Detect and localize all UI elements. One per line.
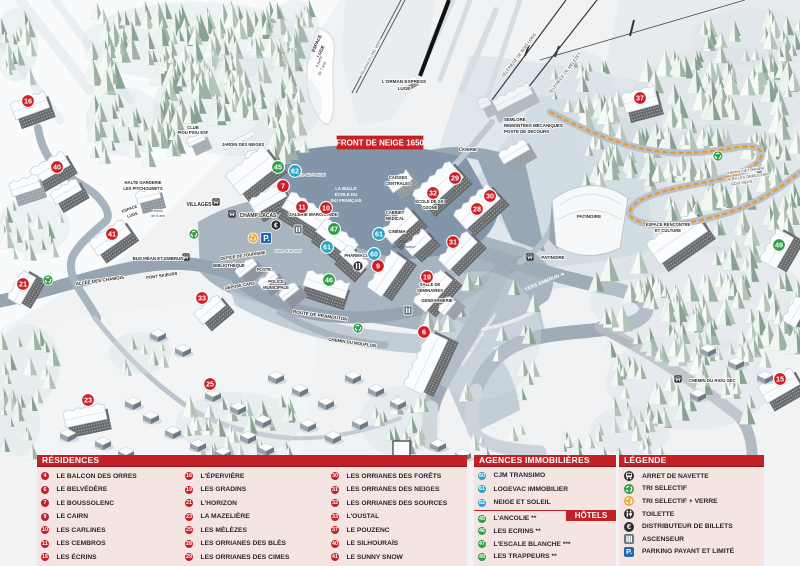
svg-text:47: 47 — [330, 225, 338, 234]
svg-text:CHAMP LACAS: CHAMP LACAS — [240, 213, 278, 219]
svg-text:61: 61 — [323, 243, 331, 252]
svg-text:POLICE: POLICE — [268, 279, 284, 284]
svg-text:SÉMINAIRES: SÉMINAIRES — [417, 288, 443, 293]
svg-text:ET CULTURE: ET CULTURE — [655, 228, 681, 233]
svg-text:MUNICIPALE: MUNICIPALE — [263, 285, 289, 290]
svg-text:L'ORMAN EXPRESS: L'ORMAN EXPRESS — [382, 79, 426, 84]
svg-text:€: € — [274, 223, 278, 230]
svg-text:19: 19 — [423, 273, 431, 282]
svg-text:JARDIN DES NEIGES: JARDIN DES NEIGES — [222, 142, 265, 147]
svg-text:LUGE: LUGE — [398, 86, 411, 91]
svg-text:30: 30 — [486, 192, 494, 201]
svg-text:moins: moins — [153, 209, 163, 213]
svg-text:PATINOIRE: PATINOIRE — [577, 214, 601, 219]
svg-text:MÉDICAL: MÉDICAL — [385, 216, 405, 221]
svg-text:37: 37 — [636, 94, 644, 103]
svg-text:LAVERIE: LAVERIE — [459, 147, 477, 152]
svg-text:SEMLORE: SEMLORE — [504, 117, 526, 122]
svg-text:PATINOIRE: PATINOIRE — [541, 255, 564, 260]
svg-text:PIOU PIOU ESF: PIOU PIOU ESF — [178, 130, 209, 135]
svg-text:FRONT DE NEIGE 1650: FRONT DE NEIGE 1650 — [336, 139, 425, 148]
svg-text:61: 61 — [375, 230, 383, 239]
svg-text:11: 11 — [298, 203, 306, 212]
svg-text:29: 29 — [451, 174, 459, 183]
svg-text:62: 62 — [291, 167, 299, 176]
svg-text:31: 31 — [449, 238, 457, 247]
svg-text:ÉCOLE DU: ÉCOLE DU — [335, 192, 358, 197]
svg-text:LES PITCHOUNETS: LES PITCHOUNETS — [123, 186, 163, 191]
svg-text:Émile Hodoul: Émile Hodoul — [393, 244, 416, 249]
svg-text:GENDARMERIE: GENDARMERIE — [421, 298, 453, 303]
svg-text:15: 15 — [776, 375, 784, 384]
svg-text:CHEMIN DU RIOU SEC: CHEMIN DU RIOU SEC — [688, 378, 736, 383]
svg-text:6: 6 — [422, 328, 426, 337]
svg-text:9: 9 — [376, 262, 380, 271]
svg-text:PHARMACIE: PHARMACIE — [344, 253, 370, 258]
svg-text:7: 7 — [281, 182, 285, 191]
svg-text:60: 60 — [370, 250, 378, 259]
svg-text:49: 49 — [775, 241, 783, 250]
svg-text:32: 32 — [429, 189, 437, 198]
svg-text:BUS MÉAN ET EMBRUN: BUS MÉAN ET EMBRUN — [133, 256, 184, 261]
svg-text:P.: P. — [263, 234, 270, 243]
svg-text:BIBLIOTHÈQUE: BIBLIOTHÈQUE — [213, 263, 245, 268]
svg-text:SKI FRANÇAIS: SKI FRANÇAIS — [330, 198, 361, 203]
svg-text:21: 21 — [19, 280, 27, 289]
svg-text:CENTRALES: CENTRALES — [385, 181, 411, 186]
svg-text:41: 41 — [108, 230, 116, 239]
svg-text:23: 23 — [84, 396, 92, 405]
svg-text:REMONTÉES MÉCANIQUES: REMONTÉES MÉCANIQUES — [504, 123, 563, 128]
svg-text:Place: Place — [399, 240, 409, 244]
svg-text:25: 25 — [206, 380, 214, 389]
svg-text:28: 28 — [473, 205, 481, 214]
svg-text:ESPACE RENCONTRE: ESPACE RENCONTRE — [646, 222, 691, 227]
svg-text:16: 16 — [24, 97, 32, 106]
svg-text:POSTE: POSTE — [257, 267, 271, 272]
svg-text:HALTE GARDERIE: HALTE GARDERIE — [125, 180, 162, 185]
svg-text:Place d'accueil: Place d'accueil — [275, 248, 302, 253]
svg-text:CABINET: CABINET — [386, 210, 405, 215]
svg-text:CINÉMA: CINÉMA — [388, 229, 406, 234]
svg-text:40: 40 — [53, 163, 61, 172]
svg-text:45: 45 — [274, 163, 282, 172]
svg-text:LA BULLE: LA BULLE — [335, 186, 357, 191]
svg-text:CAISSES: CAISSES — [389, 175, 408, 180]
svg-text:10: 10 — [322, 204, 330, 213]
svg-text:46: 46 — [325, 276, 333, 285]
svg-text:de 5 ans: de 5 ans — [151, 214, 165, 218]
svg-text:POSTE DE SECOURS: POSTE DE SECOURS — [504, 129, 549, 134]
svg-text:VILLAGES: VILLAGES — [186, 202, 212, 208]
svg-text:OZONE: OZONE — [423, 205, 438, 210]
svg-text:33: 33 — [198, 294, 206, 303]
